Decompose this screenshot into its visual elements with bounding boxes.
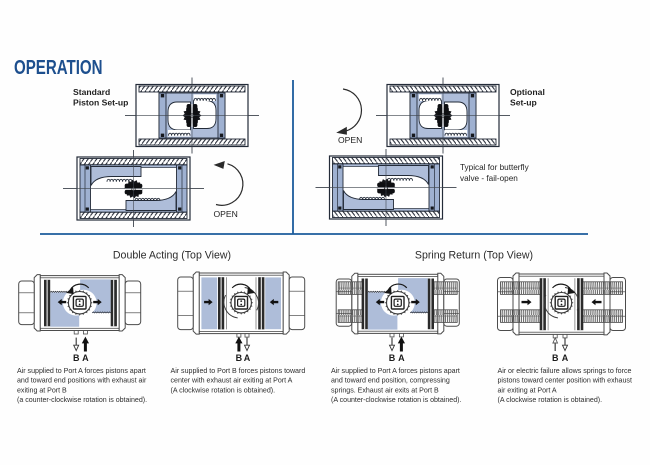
svg-text:Air supplied to Port A forces: Air supplied to Port A forces pistons ap… [331,367,460,375]
svg-text:(a counter-clockwise rotation: (a counter-clockwise rotation is obtaine… [17,396,147,404]
svg-text:Set-up: Set-up [510,98,537,108]
svg-text:and toward end position, compr: and toward end position, compressing [331,377,450,385]
svg-text:B: B [389,353,396,363]
svg-text:exiting at Port B: exiting at Port B [17,386,67,394]
svg-text:A: A [82,353,89,363]
svg-text:OPEN: OPEN [338,135,362,145]
svg-text:valve - fail-open: valve - fail-open [460,174,518,183]
svg-text:Optional: Optional [510,87,545,97]
svg-text:Air supplied to Port A forces: Air supplied to Port A forces pistons ap… [17,367,146,375]
svg-text:B: B [73,353,80,363]
svg-text:(A counter-clockwise rotation: (A counter-clockwise rotation is obtaine… [331,396,461,404]
svg-text:Piston Set-up: Piston Set-up [73,98,128,108]
svg-text:A: A [244,353,251,363]
svg-text:Double Acting (Top View): Double Acting (Top View) [113,250,231,262]
svg-text:A: A [398,353,405,363]
svg-text:Standard: Standard [73,87,110,97]
svg-text:and toward end positions with: and toward end positions with exhaust ai… [17,377,147,385]
svg-text:Spring Return (Top View): Spring Return (Top View) [415,250,533,262]
svg-text:(A clockwise rotation is obtai: (A clockwise rotation is obtained). [498,396,603,404]
svg-text:center with exhaust air exitin: center with exhaust air exiting at Port … [171,377,293,385]
svg-text:B: B [236,353,243,363]
svg-text:A: A [562,353,569,363]
svg-text:air exiting at Port A: air exiting at Port A [498,386,557,394]
svg-text:(A clockwise rotation is obtai: (A clockwise rotation is obtained). [171,386,276,394]
svg-text:pistons toward center position: pistons toward center position with exha… [498,377,632,385]
svg-text:OPERATION: OPERATION [14,57,103,79]
svg-text:Air supplied to Port B forces: Air supplied to Port B forces pistons to… [171,367,306,375]
svg-text:B: B [552,353,559,363]
svg-text:Air or electric failure allows: Air or electric failure allows springs t… [498,367,632,375]
svg-text:springs. Exhaust air exits at: springs. Exhaust air exits at Port B [331,386,439,394]
svg-text:Typical for butterfly: Typical for butterfly [460,163,530,172]
svg-text:OPEN: OPEN [214,209,238,219]
